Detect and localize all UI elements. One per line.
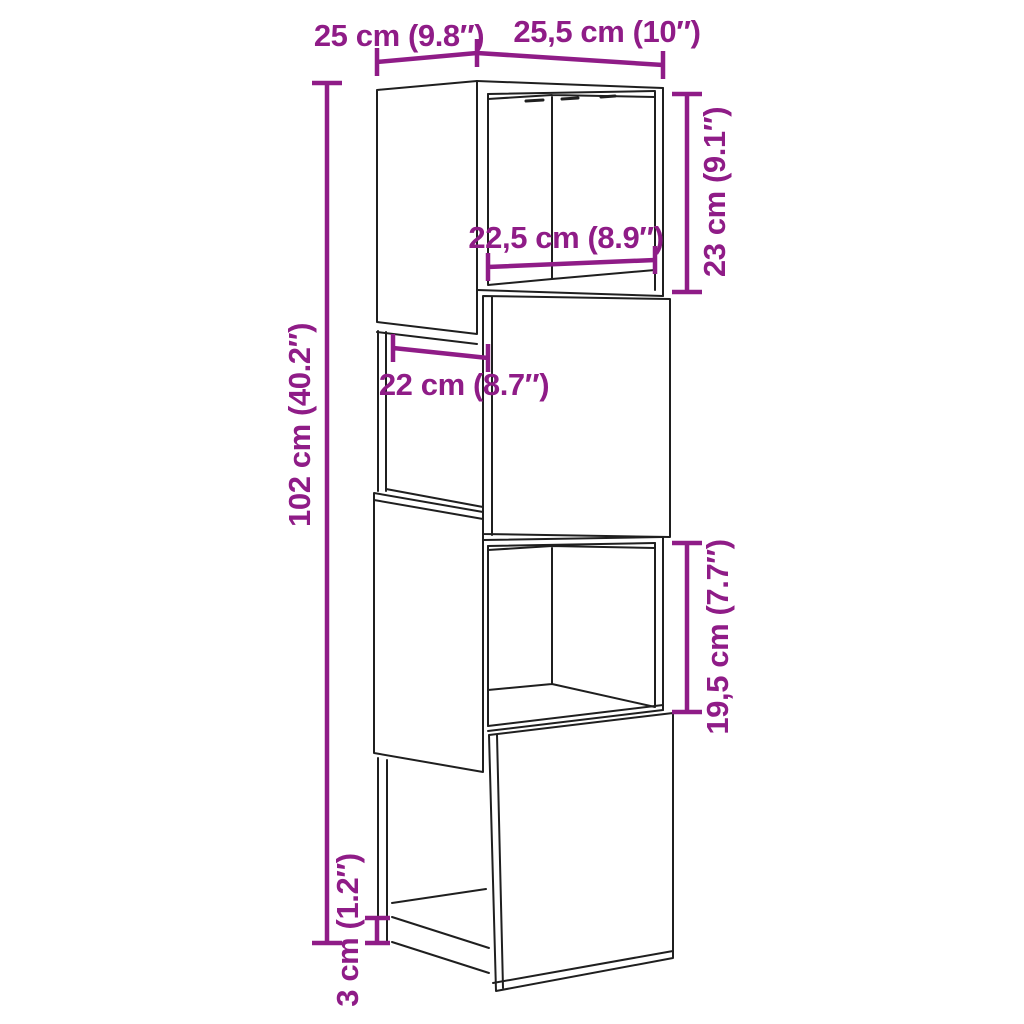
- cabinet-line-drawing: [374, 81, 673, 991]
- label-lower-compartment-height: 19,5 cm (7.7″): [700, 539, 735, 734]
- dim-width-line: [477, 51, 663, 79]
- cube4-plinth-front-edge: [392, 917, 489, 948]
- cube1-bottom-frame-edge: [477, 290, 663, 296]
- dimension-diagram-canvas: 25 cm (9.8″) 25,5 cm (10″) 102 cm (40.2″…: [0, 0, 1024, 1024]
- cube3-side-door: [374, 493, 483, 772]
- cube4-front-door: [489, 713, 673, 991]
- cube1-front-top-edge: [477, 81, 663, 88]
- cube4-floor-edge: [392, 942, 489, 973]
- label-side-opening-depth: 22 cm (8.7″): [379, 367, 549, 402]
- cube4-bottom-panel-edge: [392, 889, 486, 903]
- cube2-front-door: [483, 296, 670, 537]
- cube3-front-top-outer: [483, 537, 663, 540]
- label-total-height: 102 cm (40.2″): [282, 323, 317, 527]
- cube1-side-panel: [377, 81, 477, 334]
- label-inner-width: 22,5 cm (8.9″): [468, 220, 663, 255]
- cube3-interior-top-edges: [488, 546, 655, 550]
- cube3-shelf-back-edges: [488, 684, 655, 707]
- label-top-compartment-height: 23 cm (9.1″): [697, 107, 732, 277]
- cube2-side-back-edges: [378, 331, 386, 491]
- cube1-shelf-back-edges: [488, 270, 655, 285]
- label-width: 25,5 cm (10″): [513, 14, 700, 49]
- label-depth: 25 cm (9.8″): [314, 18, 484, 53]
- cube1-inner-top-edge: [488, 91, 655, 94]
- label-plinth-height: 3 cm (1.2″): [330, 853, 365, 1006]
- product-dimension-diagram: 25 cm (9.8″) 25,5 cm (10″) 102 cm (40.2″…: [0, 0, 1024, 1024]
- dim-lower-compartment-line: [672, 543, 702, 712]
